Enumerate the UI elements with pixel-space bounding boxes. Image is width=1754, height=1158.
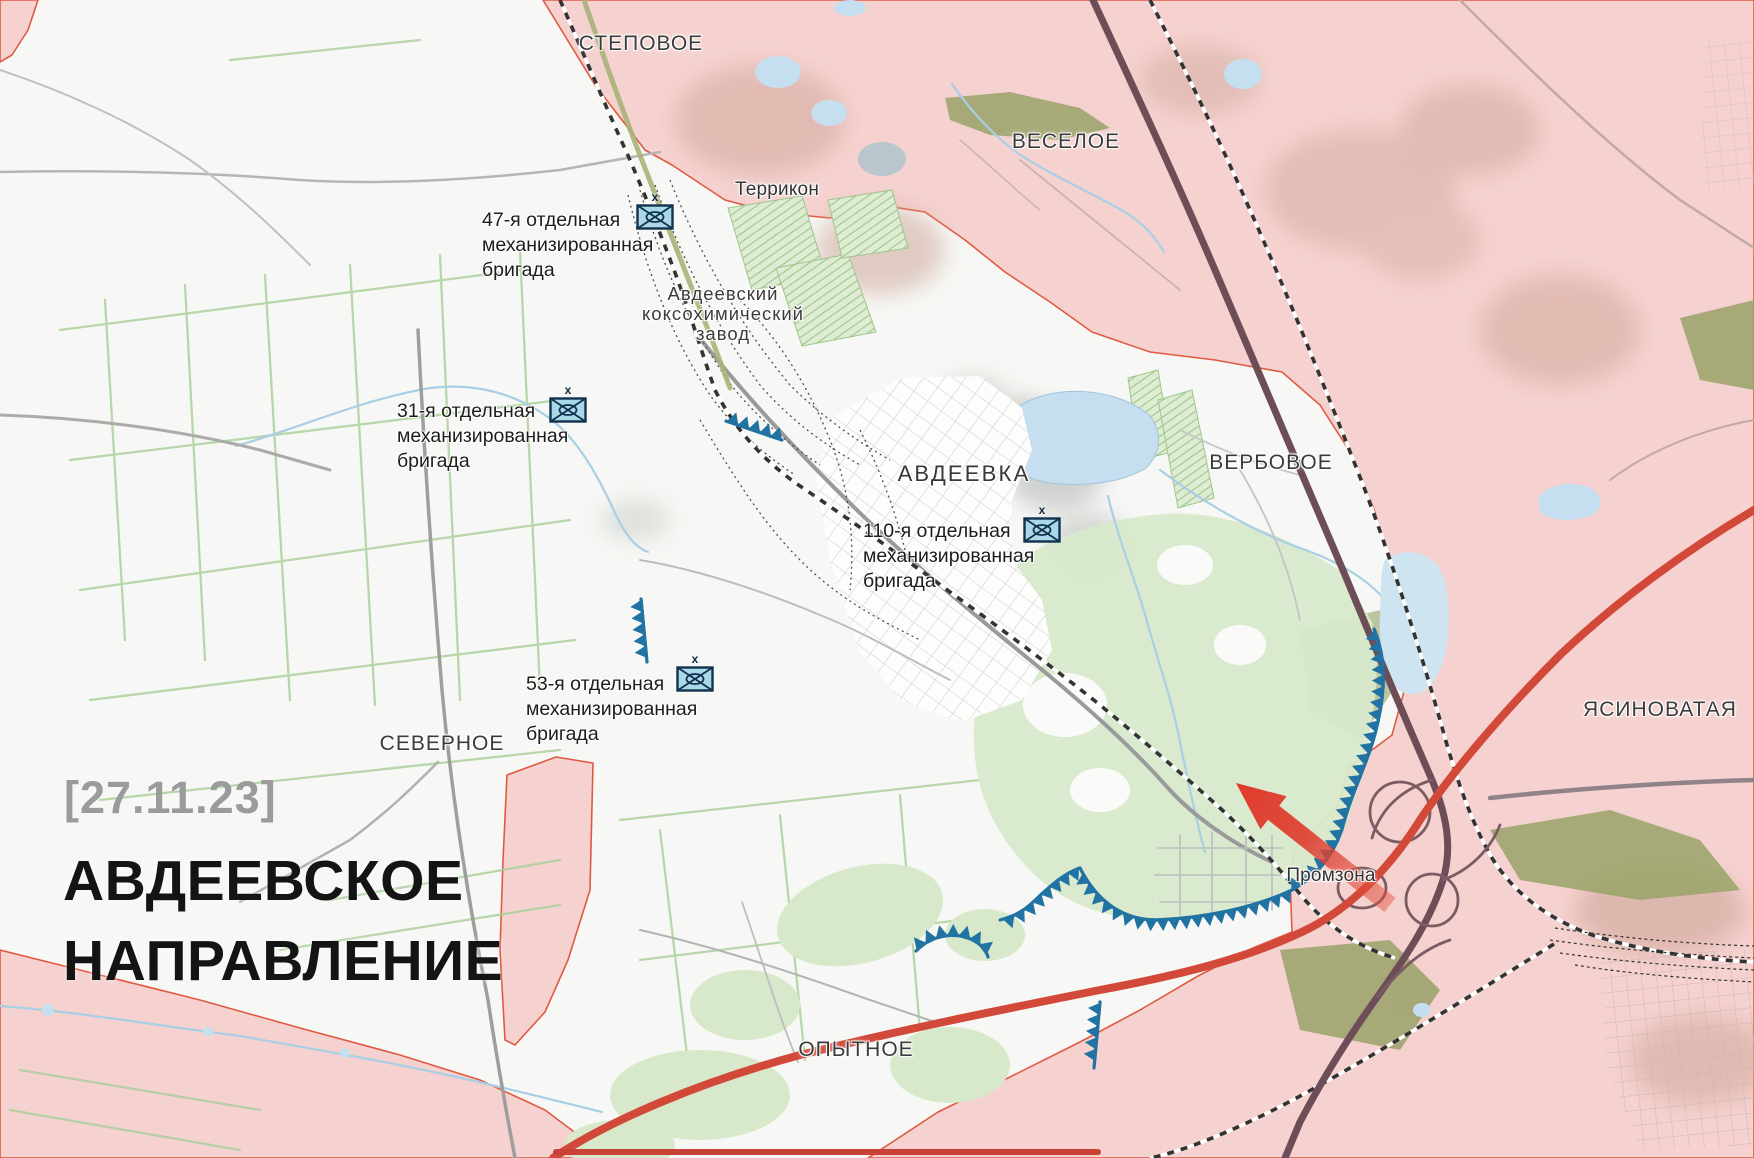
reservoir [1380, 552, 1449, 694]
pond [1413, 1003, 1431, 1017]
echelon-mark: x [1023, 505, 1061, 516]
echelon-mark: x [549, 385, 587, 396]
label-koksozavod-line1: Авдеевский [593, 284, 853, 304]
mech-infantry-symbol [636, 204, 674, 230]
label-severne: СЕВЕРНОЕ [380, 732, 505, 756]
label-terrikon: Террикон [735, 179, 819, 201]
label-stepove: СТЕПОВОЕ [579, 32, 703, 56]
unit-53-line2: механизированная [526, 697, 697, 722]
mech-infantry-symbol [549, 397, 587, 423]
map-title-line1: АВДЕЕВСКОЕ [63, 853, 464, 910]
echelon-mark: x [636, 192, 674, 203]
mech-brigade-icon-31: x [549, 385, 587, 428]
unit-110-line3: бригада [863, 569, 1034, 594]
mech-brigade-icon-53: x [676, 654, 714, 697]
mech-infantry-symbol [1023, 517, 1061, 543]
unit-label-31st-brigade: 31-я отдельная механизированная бригада [397, 399, 568, 474]
unit-label-47th-brigade: 47-я отдельная механизированная бригада [482, 208, 653, 283]
label-vesele: ВЕСЕЛОЕ [1012, 130, 1120, 154]
avdiivka-situation-map: СТЕПОВОЕ ВЕСЕЛОЕ Террикон Авдеевский кок… [0, 0, 1754, 1158]
label-koksozavod-line3: завод [593, 324, 853, 344]
unit-31-line1: 31-я отдельная [397, 399, 568, 424]
mech-infantry-symbol [676, 666, 714, 692]
pond [834, 0, 866, 16]
label-koksozavod: Авдеевский коксохимический завод [593, 284, 853, 344]
label-opytne: ОПЫТНОЕ [798, 1038, 913, 1062]
unit-110-line2: механизированная [863, 544, 1034, 569]
unit-53-line3: бригада [526, 722, 697, 747]
pond [42, 1004, 54, 1016]
pond [811, 100, 847, 126]
label-koksozavod-line2: коксохимический [593, 304, 853, 324]
unit-31-line3: бригада [397, 449, 568, 474]
pond [203, 1027, 213, 1037]
pond [858, 142, 906, 176]
unit-47-line2: механизированная [482, 233, 653, 258]
mech-brigade-icon-47: x [636, 192, 674, 235]
label-promzona: Промзона [1286, 865, 1375, 887]
unit-31-line2: механизированная [397, 424, 568, 449]
unit-47-line1: 47-я отдельная [482, 208, 653, 233]
map-title-line2: НАПРАВЛЕНИЕ [63, 933, 503, 990]
unit-110-line1: 110-я отдельная [863, 519, 1034, 544]
map-date: [27.11.23] [64, 772, 277, 824]
unit-53-line1: 53-я отдельная [526, 672, 697, 697]
pond [1224, 59, 1262, 89]
pond [755, 56, 801, 88]
mech-brigade-icon-110: x [1023, 505, 1061, 548]
unit-label-53rd-brigade: 53-я отдельная механизированная бригада [526, 672, 697, 747]
unit-47-line3: бригада [482, 258, 653, 283]
label-avdiivka: АВДЕЕВКА [898, 461, 1031, 487]
echelon-mark: x [676, 654, 714, 665]
pond [340, 1048, 350, 1058]
label-yasynuvata: ЯСИНОВАТАЯ [1583, 698, 1737, 722]
unit-label-110th-brigade: 110-я отдельная механизированная бригада [863, 519, 1034, 594]
label-verbove: ВЕРБОВОЕ [1209, 451, 1333, 475]
